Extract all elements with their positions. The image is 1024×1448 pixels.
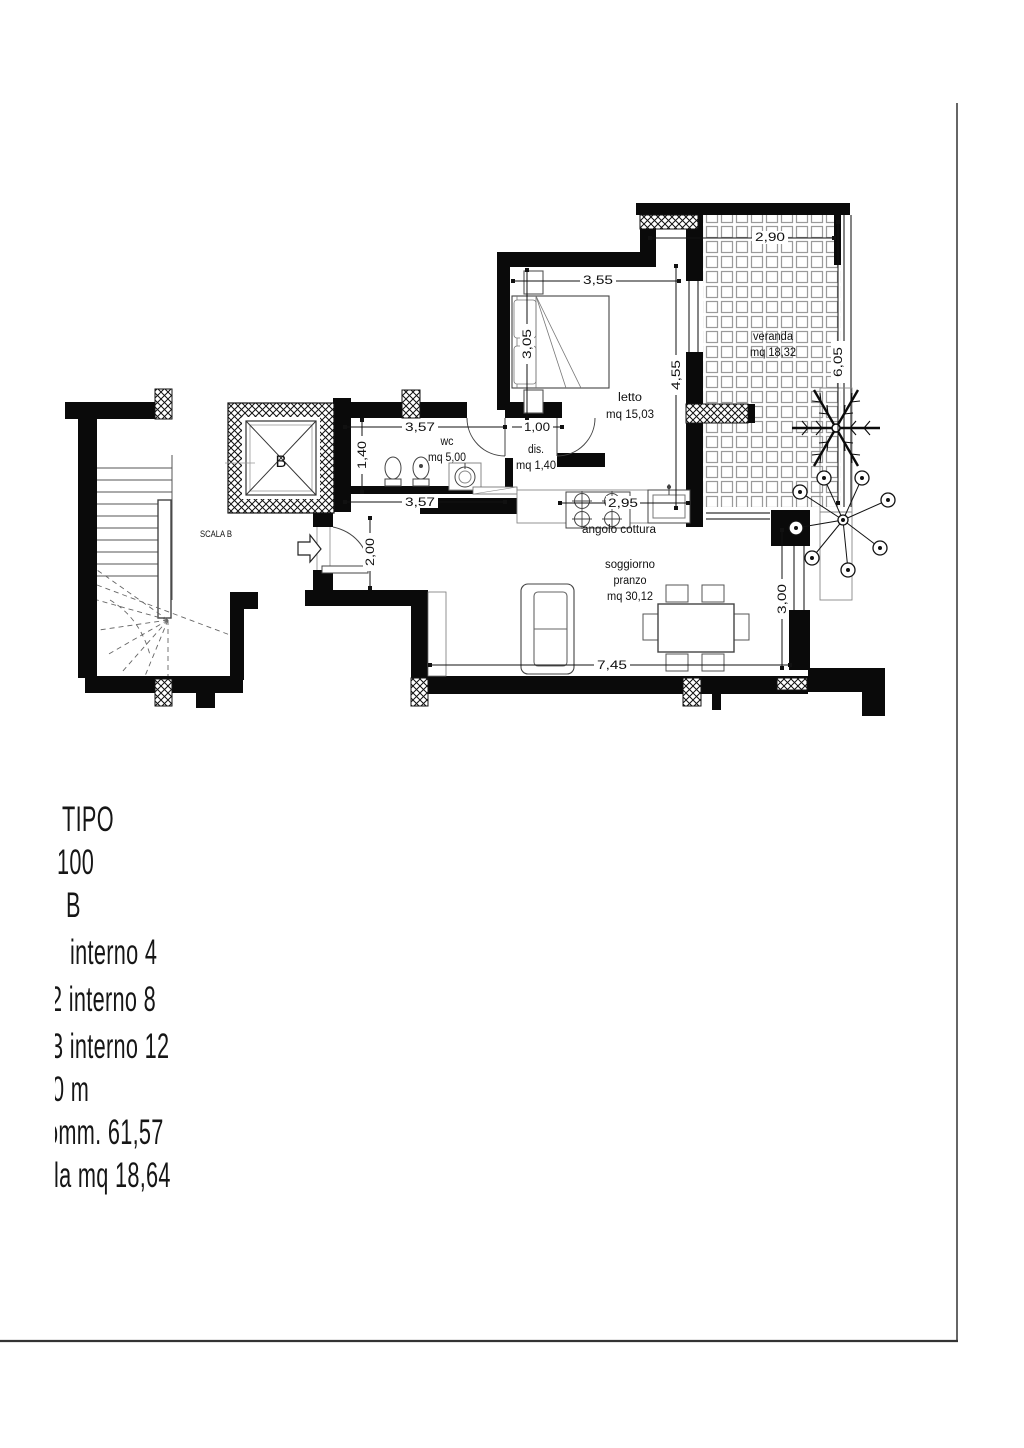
label-wc-area: mq 5,00 [428,452,466,464]
label-letto-area: mq 15,03 [606,409,654,421]
dim-veranda-width: 2,90 [755,230,785,244]
dim-wc-width-top: 3,57 [405,420,435,434]
title-line-interno12: 3 interno 12 [55,1027,395,1071]
title-line-b: B [66,886,406,930]
label-pranzo: pranzo [614,575,647,587]
washbasin-icon [449,463,481,490]
label-veranda: veranda [753,331,794,343]
stairs [97,455,230,676]
sofa-icon [521,584,574,674]
title-line-100: 100 [57,843,397,887]
title-line-altezza: 0 m [55,1070,395,1114]
dim-cucina-width: 2,95 [608,496,638,510]
dim-entry-height: 2,00 [363,538,377,566]
dim-wc-width-bottom: 3,57 [405,495,435,509]
dim-soggiorno-width: 7,45 [597,658,627,672]
title-line-interno8: 2 interno 8 [55,980,395,1024]
title-line-tipo: TIPO [62,800,402,844]
label-angolo-cottura: angolo cottura [582,524,657,536]
drawing-sheet: 2,90 6,05 3,55 3,05 4,55 3,57 1,00 1,40 … [0,0,1024,1448]
dim-veranda-height: 6,05 [831,347,845,377]
label-elevator-b: B [276,452,287,471]
dim-letto-width: 3,55 [583,273,613,287]
label-soggiorno-area: mq 30,12 [607,591,653,603]
title-line-pergola: la mq 18,64 [55,1156,395,1200]
label-wc: wc [440,436,454,448]
title-line-somma: omm. 61,57 [55,1113,395,1157]
label-dis: dis. [528,444,544,456]
toilet-icon [385,457,401,486]
label-scala-b: SCALA B [200,529,232,539]
dim-letto-height2: 4,55 [669,360,683,390]
dim-dis-width: 1,00 [524,420,550,434]
floor-plan: 2,90 6,05 3,55 3,05 4,55 3,57 1,00 1,40 … [0,0,1024,1448]
label-letto: letto [618,392,642,404]
dim-letto-height1: 3,05 [520,329,534,359]
laundry-shelf [473,487,517,494]
dim-wc-height: 1,40 [355,441,369,469]
label-dis-area: mq 1,40 [516,460,556,472]
label-soggiorno: soggiorno [605,559,655,571]
veranda-tiled-floor [703,215,845,507]
dim-soggiorno-height: 3,00 [775,584,789,614]
label-veranda-area: mq 18,32 [750,347,796,359]
entry-arrow-icon [298,535,321,562]
bidet-icon [413,457,429,486]
title-line-interno4: interno 4 [70,933,410,977]
dining-table-icon [643,585,749,671]
